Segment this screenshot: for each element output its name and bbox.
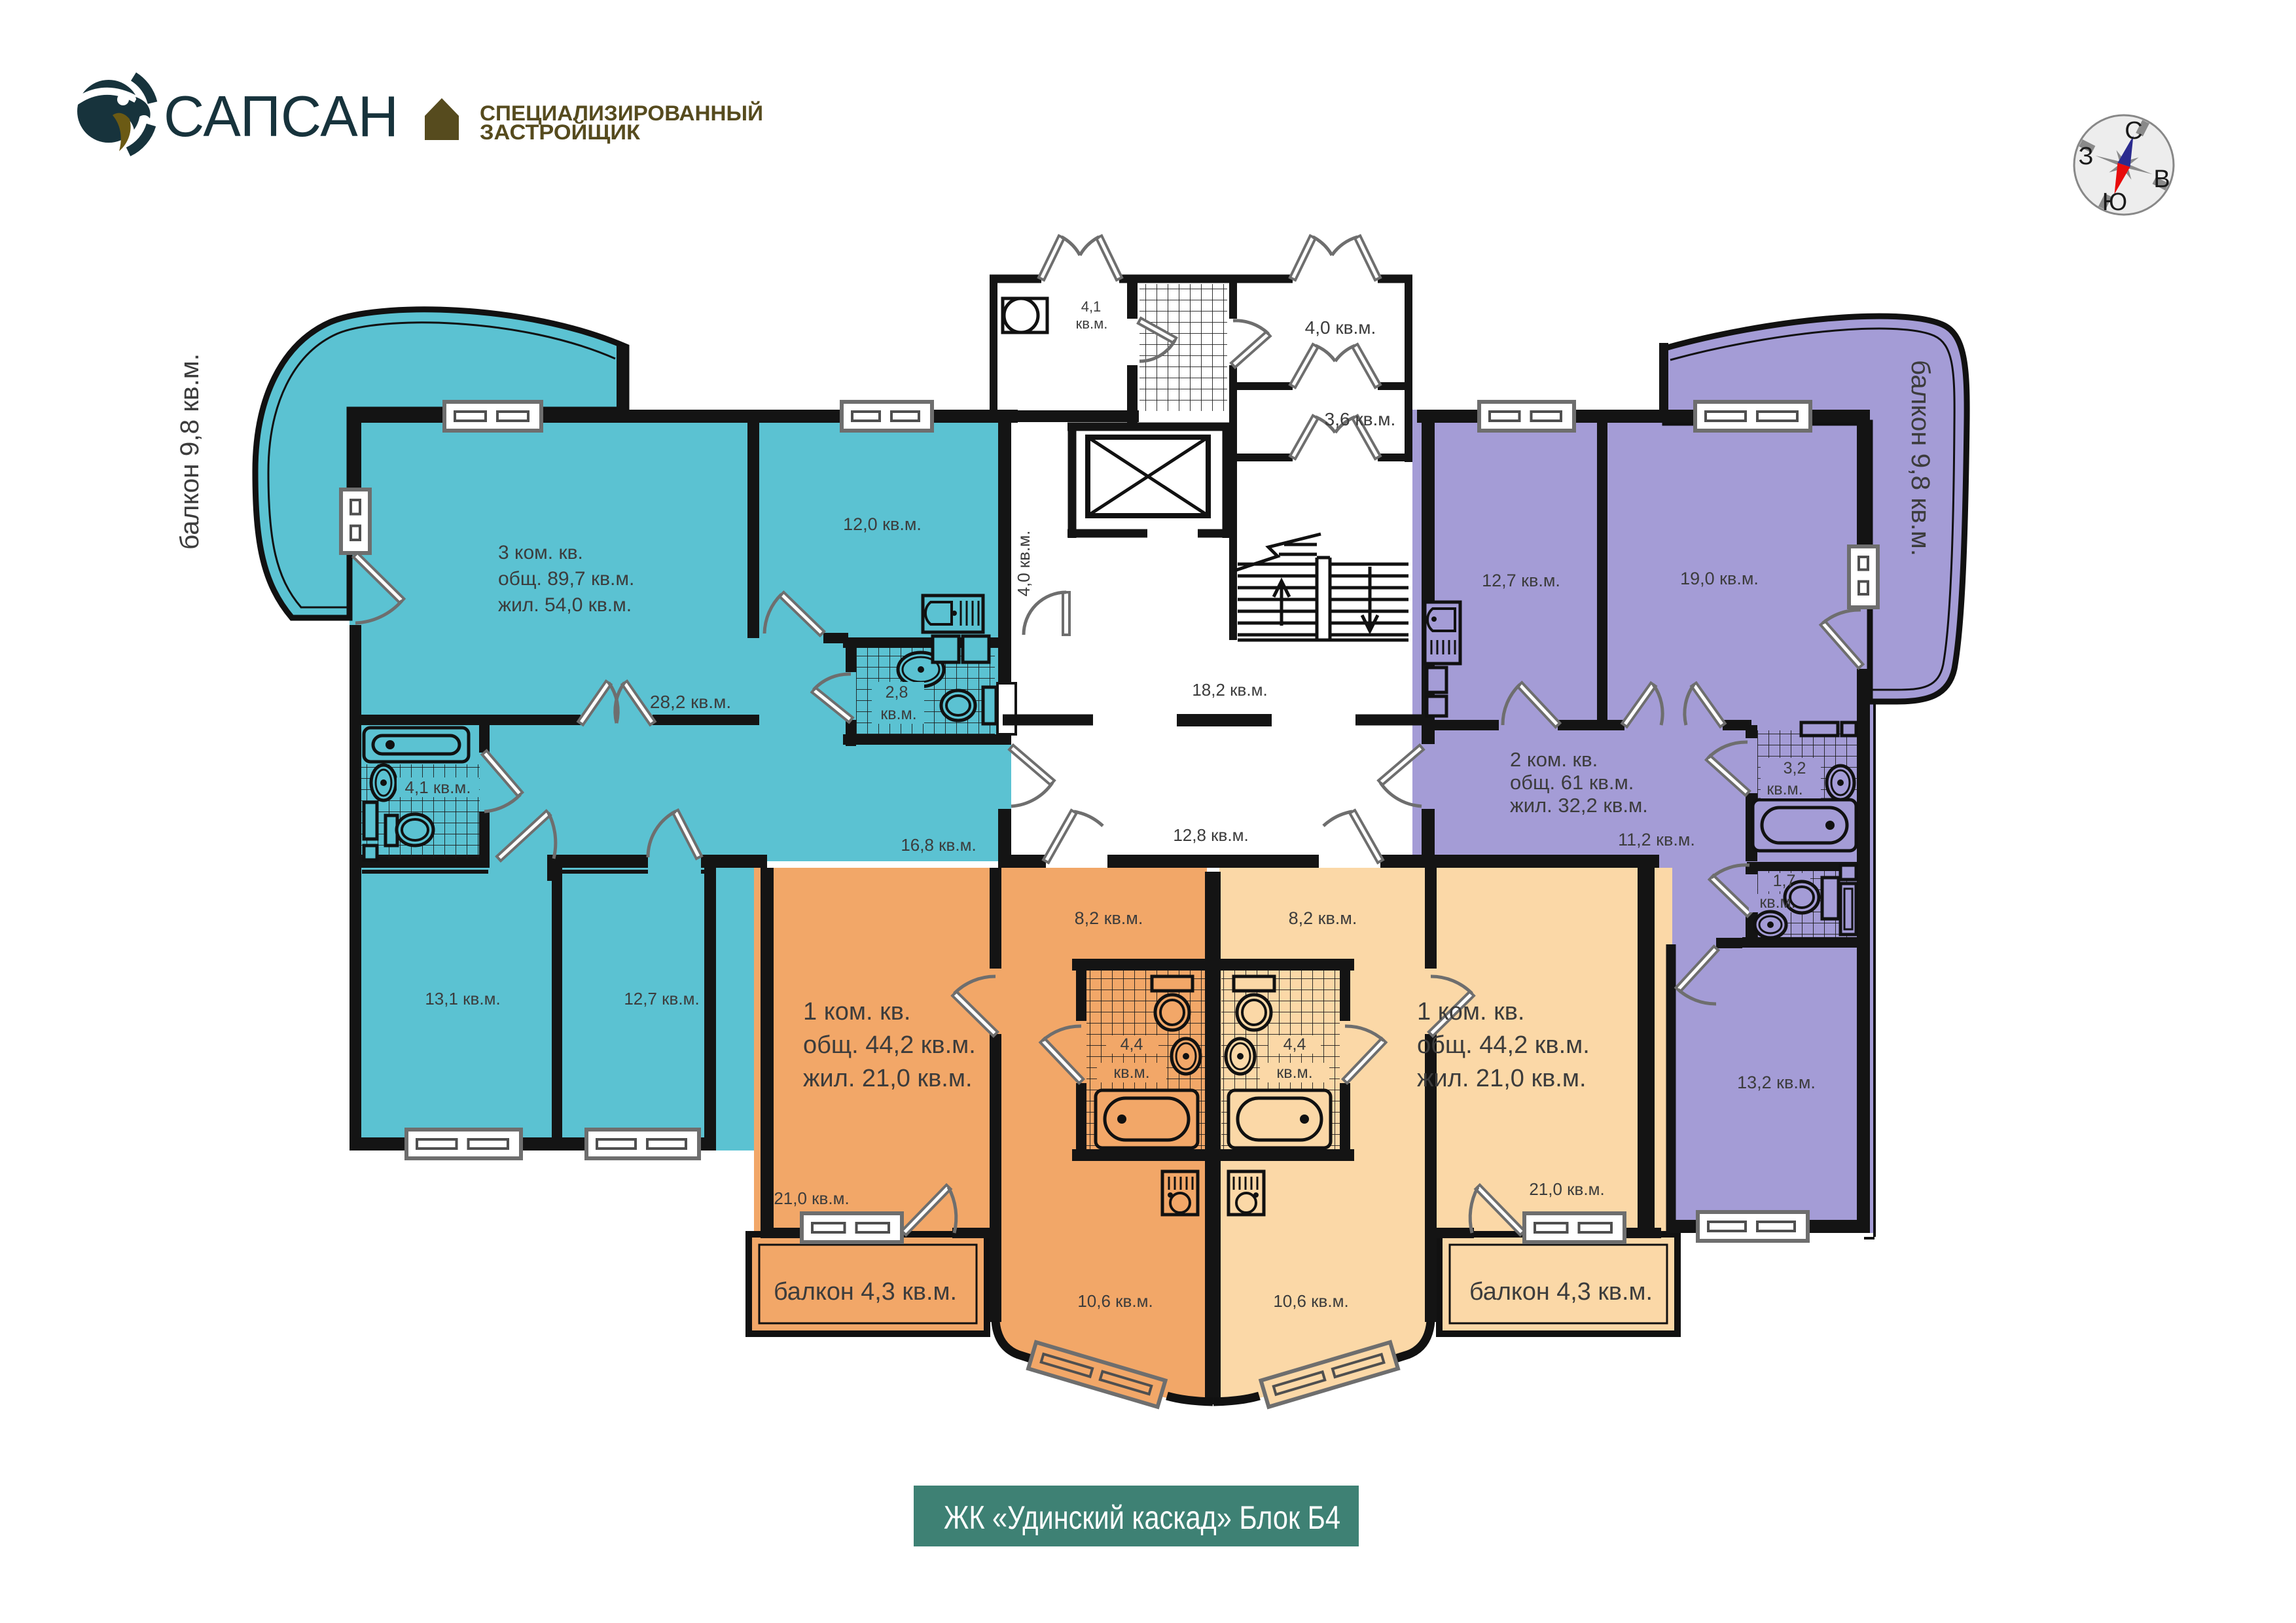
svg-text:общ. 89,7 кв.м.: общ. 89,7 кв.м. [498, 568, 634, 590]
svg-text:13,1 кв.м.: 13,1 кв.м. [425, 989, 500, 1008]
svg-text:3,2: 3,2 [1784, 759, 1806, 777]
svg-text:2 ком. кв.: 2 ком. кв. [1510, 748, 1598, 771]
svg-text:12,0 кв.м.: 12,0 кв.м. [843, 514, 922, 534]
svg-text:12,7 кв.м.: 12,7 кв.м. [624, 989, 699, 1008]
svg-text:21,0 кв.м.: 21,0 кв.м. [1529, 1179, 1604, 1199]
svg-text:2,8: 2,8 [886, 683, 908, 702]
svg-text:кв.м.: кв.м. [880, 705, 916, 723]
svg-text:4,4: 4,4 [1283, 1035, 1306, 1054]
svg-text:кв.м.: кв.м. [1113, 1063, 1149, 1082]
svg-text:общ. 44,2 кв.м.: общ. 44,2 кв.м. [1417, 1031, 1590, 1059]
svg-text:жил. 21,0 кв.м.: жил. 21,0 кв.м. [1417, 1065, 1587, 1092]
svg-text:4,1 кв.м.: 4,1 кв.м. [405, 777, 471, 797]
svg-text:11,2 кв.м.: 11,2 кв.м. [1618, 830, 1695, 849]
svg-text:1,7: 1,7 [1773, 872, 1796, 890]
svg-text:21,0 кв.м.: 21,0 кв.м. [774, 1188, 849, 1208]
svg-text:жил. 54,0 кв.м.: жил. 54,0 кв.м. [498, 594, 632, 616]
svg-text:С: С [2125, 117, 2142, 145]
svg-text:4,1: 4,1 [1081, 298, 1102, 315]
svg-text:1 ком. кв.: 1 ком. кв. [803, 998, 911, 1026]
svg-text:кв.м.: кв.м. [1759, 893, 1795, 912]
svg-text:жил. 21,0 кв.м.: жил. 21,0 кв.м. [803, 1065, 973, 1092]
svg-text:З: З [2079, 143, 2094, 170]
svg-text:19,0 кв.м.: 19,0 кв.м. [1680, 569, 1759, 588]
svg-text:3 ком. кв.: 3 ком. кв. [498, 542, 583, 563]
svg-text:балкон 9,8 кв.м.: балкон 9,8 кв.м. [1906, 360, 1935, 556]
svg-text:В: В [2153, 166, 2170, 193]
svg-text:балкон 9,8 кв.м.: балкон 9,8 кв.м. [175, 353, 204, 550]
svg-text:ЖК «Удинский каскад» Блок Б4: ЖК «Удинский каскад» Блок Б4 [944, 1499, 1340, 1536]
svg-text:4,0 кв.м.: 4,0 кв.м. [1305, 317, 1376, 338]
svg-text:кв.м.: кв.м. [1076, 315, 1108, 332]
svg-text:28,2 кв.м.: 28,2 кв.м. [650, 692, 731, 712]
svg-text:8,2 кв.м.: 8,2 кв.м. [1075, 908, 1143, 928]
svg-text:САПСАН: САПСАН [164, 84, 399, 149]
svg-text:ЗАСТРОЙЩИК: ЗАСТРОЙЩИК [480, 120, 641, 144]
svg-text:балкон 4,3 кв.м.: балкон 4,3 кв.м. [1469, 1278, 1653, 1306]
svg-text:12,7 кв.м.: 12,7 кв.м. [1482, 571, 1560, 590]
svg-text:4,0 кв.м.: 4,0 кв.м. [1014, 531, 1033, 597]
svg-text:3,6 кв.м.: 3,6 кв.м. [1325, 409, 1396, 429]
svg-text:10,6 кв.м.: 10,6 кв.м. [1273, 1291, 1348, 1311]
svg-text:16,8 кв.м.: 16,8 кв.м. [901, 835, 976, 855]
svg-text:кв.м.: кв.м. [1276, 1063, 1312, 1082]
svg-text:балкон 4,3 кв.м.: балкон 4,3 кв.м. [774, 1278, 957, 1306]
svg-text:8,2 кв.м.: 8,2 кв.м. [1289, 908, 1357, 928]
svg-text:12,8 кв.м.: 12,8 кв.м. [1173, 825, 1248, 845]
svg-text:общ. 44,2 кв.м.: общ. 44,2 кв.м. [803, 1031, 976, 1059]
svg-text:4,4: 4,4 [1121, 1035, 1143, 1054]
svg-text:жил. 32,2 кв.м.: жил. 32,2 кв.м. [1510, 794, 1648, 817]
svg-text:10,6 кв.м.: 10,6 кв.м. [1077, 1291, 1153, 1311]
svg-text:Ю: Ю [2102, 188, 2127, 216]
svg-text:18,2 кв.м.: 18,2 кв.м. [1192, 680, 1267, 700]
svg-text:1 ком. кв.: 1 ком. кв. [1417, 998, 1525, 1026]
svg-text:13,2 кв.м.: 13,2 кв.м. [1737, 1073, 1816, 1092]
svg-text:общ. 61 кв.м.: общ. 61 кв.м. [1510, 771, 1634, 794]
svg-text:кв.м.: кв.м. [1767, 780, 1803, 798]
